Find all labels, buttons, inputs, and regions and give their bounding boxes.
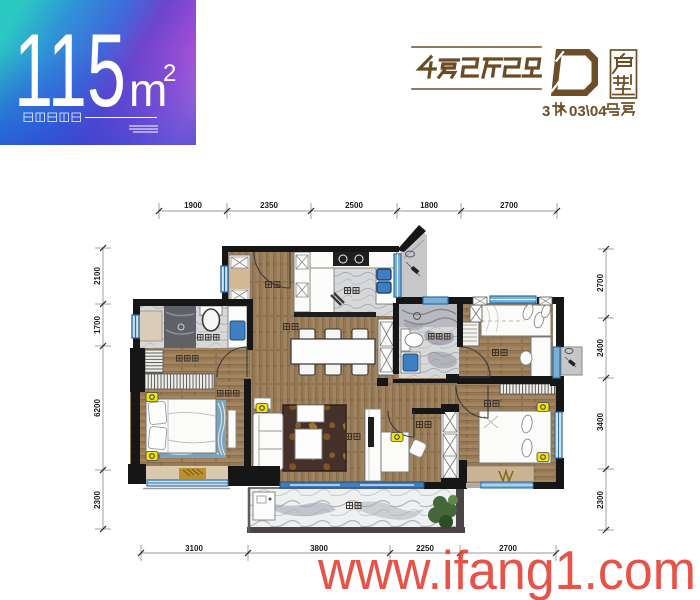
svg-text:2700: 2700 bbox=[596, 274, 605, 292]
svg-text:2300: 2300 bbox=[93, 491, 102, 509]
svg-text:2100: 2100 bbox=[93, 267, 102, 285]
svg-text:03\04: 03\04 bbox=[569, 103, 607, 120]
svg-text:3400: 3400 bbox=[596, 413, 605, 431]
svg-text:2: 2 bbox=[163, 60, 176, 87]
svg-text:2500: 2500 bbox=[345, 201, 363, 210]
svg-text:m: m bbox=[129, 64, 167, 116]
svg-text:3100: 3100 bbox=[185, 544, 203, 553]
svg-text:2300: 2300 bbox=[596, 491, 605, 509]
svg-text:2400: 2400 bbox=[596, 339, 605, 357]
svg-text:3: 3 bbox=[542, 103, 550, 120]
svg-text:www.ifang1.com: www.ifang1.com bbox=[317, 539, 696, 600]
svg-text:1800: 1800 bbox=[420, 201, 438, 210]
svg-text:1700: 1700 bbox=[93, 316, 102, 334]
svg-text:6200: 6200 bbox=[93, 399, 102, 417]
svg-text:115: 115 bbox=[14, 13, 126, 129]
svg-text:2700: 2700 bbox=[500, 201, 518, 210]
svg-text:1900: 1900 bbox=[184, 201, 202, 210]
svg-text:2350: 2350 bbox=[260, 201, 278, 210]
